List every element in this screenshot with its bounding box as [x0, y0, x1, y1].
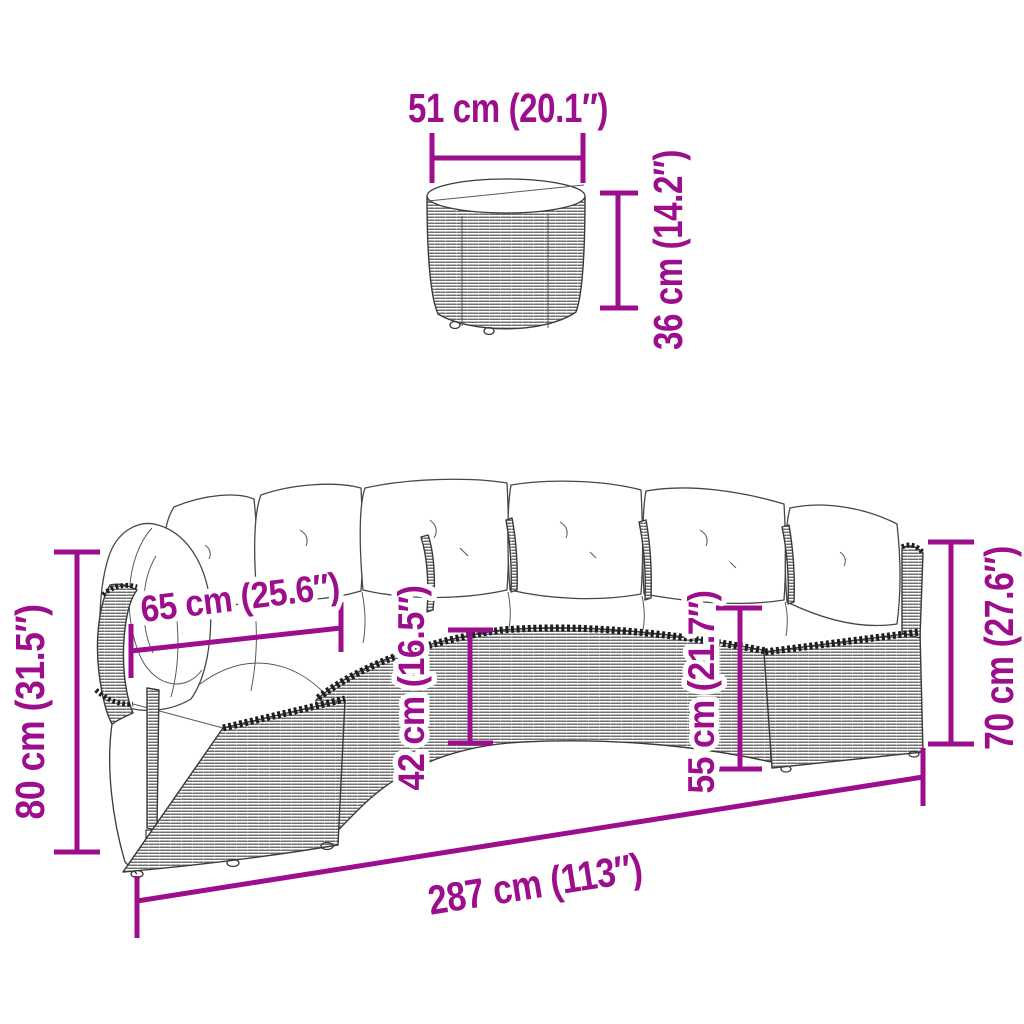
table-height-label: 36 cm (14.2″) [645, 150, 691, 350]
rear-leg [147, 688, 159, 830]
sofa-arm-height-label: 80 cm (31.5″) [7, 605, 53, 820]
diagram-canvas: 51 cm (20.1″) 36 cm (14.2″) 80 cm (31.5″… [0, 0, 1024, 1024]
sofa-illustration [96, 479, 923, 877]
sofa-back-height-label: 70 cm (27.6″) [976, 546, 1022, 750]
table-width-label: 51 cm (20.1″) [408, 85, 608, 131]
right-back-column [902, 546, 923, 638]
table-width-line [432, 133, 583, 183]
table-foot-left [450, 322, 460, 329]
sofa-seat-height-label: 42 cm (16.5″) [391, 586, 432, 791]
sofa-total-width-label: 287 cm (113″) [425, 844, 646, 923]
sofa-back-height-line [928, 542, 974, 744]
back-pillow-7 [785, 505, 900, 626]
sofa-arm-height-line [54, 552, 100, 852]
back-pillow-6 [643, 488, 786, 603]
product-dimension-diagram: 51 cm (20.1″) 36 cm (14.2″) 80 cm (31.5″… [0, 0, 1024, 1024]
table-height-line [600, 193, 638, 308]
sofa-back-height-dimension: 70 cm (27.6″) [928, 542, 1022, 750]
side-table-illustration [427, 179, 585, 335]
table-top [427, 179, 585, 213]
sofa-seat-back-height-label: 55 cm (21.7″) [681, 591, 722, 794]
sofa-arm-height-dimension: 80 cm (31.5″) [7, 552, 100, 852]
throw-pillow-fold [200, 663, 327, 696]
back-pillow-5 [508, 481, 643, 599]
table-width-dimension: 51 cm (20.1″) [408, 85, 608, 183]
left-side-face-contour [110, 724, 137, 874]
table-body [427, 196, 585, 329]
table-height-dimension: 36 cm (14.2″) [600, 150, 691, 350]
